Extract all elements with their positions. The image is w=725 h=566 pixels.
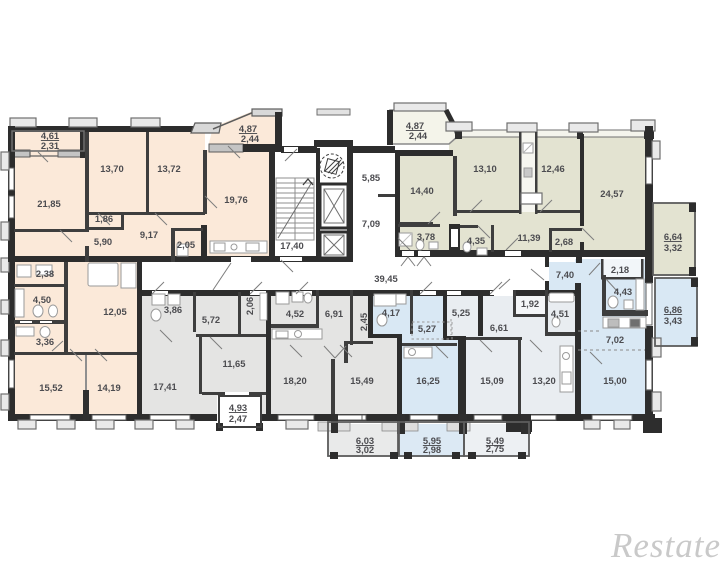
svg-text:3,36: 3,36: [36, 336, 54, 347]
svg-text:2,45: 2,45: [358, 313, 369, 331]
svg-text:5,25: 5,25: [452, 307, 470, 318]
svg-text:13,20: 13,20: [532, 375, 555, 386]
svg-text:4,51: 4,51: [551, 308, 569, 319]
svg-text:39,45: 39,45: [374, 273, 397, 284]
svg-text:2,31: 2,31: [41, 140, 59, 151]
svg-text:15,52: 15,52: [39, 382, 62, 393]
svg-text:4,50: 4,50: [33, 294, 51, 305]
svg-text:5,27: 5,27: [418, 323, 436, 334]
svg-text:13,10: 13,10: [473, 163, 496, 174]
svg-text:2,18: 2,18: [611, 264, 629, 275]
svg-text:6,61: 6,61: [490, 322, 508, 333]
svg-text:15,00: 15,00: [603, 375, 626, 386]
svg-text:9,17: 9,17: [140, 229, 158, 240]
svg-text:7,40: 7,40: [556, 269, 574, 280]
svg-text:4,17: 4,17: [382, 307, 400, 318]
svg-text:4,52: 4,52: [286, 308, 304, 319]
svg-text:11,39: 11,39: [518, 232, 541, 243]
svg-text:2,98: 2,98: [423, 444, 441, 455]
svg-text:18,20: 18,20: [283, 375, 306, 386]
svg-text:17,40: 17,40: [280, 240, 303, 251]
svg-text:2,05: 2,05: [177, 239, 195, 250]
svg-text:17,41: 17,41: [153, 381, 176, 392]
svg-text:4,93: 4,93: [229, 402, 247, 413]
svg-text:5,90: 5,90: [94, 236, 112, 247]
svg-text:2,06: 2,06: [244, 297, 255, 315]
svg-text:3,32: 3,32: [664, 242, 682, 253]
svg-text:6,64: 6,64: [664, 231, 683, 242]
svg-text:2,47: 2,47: [229, 413, 247, 424]
svg-text:16,25: 16,25: [416, 375, 439, 386]
svg-text:19,76: 19,76: [224, 194, 247, 205]
svg-text:7,09: 7,09: [362, 218, 380, 229]
svg-text:2,44: 2,44: [409, 130, 428, 141]
svg-text:6,91: 6,91: [325, 308, 343, 319]
svg-text:5,72: 5,72: [202, 314, 220, 325]
svg-text:24,57: 24,57: [600, 188, 623, 199]
svg-text:15,09: 15,09: [480, 375, 503, 386]
svg-text:15,49: 15,49: [350, 375, 373, 386]
svg-text:2,38: 2,38: [36, 268, 54, 279]
svg-text:3,86: 3,86: [164, 304, 182, 315]
svg-text:6,86: 6,86: [664, 304, 682, 315]
svg-text:11,65: 11,65: [223, 358, 246, 369]
svg-text:13,70: 13,70: [100, 163, 123, 174]
svg-text:12,46: 12,46: [541, 163, 564, 174]
svg-text:21,85: 21,85: [37, 198, 60, 209]
svg-text:14,40: 14,40: [410, 185, 433, 196]
svg-text:Restate: Restate: [610, 526, 721, 565]
svg-text:3,02: 3,02: [356, 444, 374, 455]
svg-text:2,68: 2,68: [555, 236, 573, 247]
svg-text:4,35: 4,35: [467, 235, 485, 246]
svg-text:7,02: 7,02: [606, 334, 624, 345]
svg-text:14,19: 14,19: [97, 382, 120, 393]
svg-text:5,85: 5,85: [362, 172, 380, 183]
svg-text:13,72: 13,72: [157, 163, 180, 174]
svg-text:1,92: 1,92: [521, 298, 539, 309]
svg-text:3,43: 3,43: [664, 315, 682, 326]
svg-text:2,75: 2,75: [486, 443, 504, 454]
svg-text:3,78: 3,78: [417, 231, 435, 242]
svg-text:2,44: 2,44: [241, 133, 260, 144]
svg-text:4,43: 4,43: [614, 286, 632, 297]
svg-text:1,86: 1,86: [95, 213, 113, 224]
svg-text:12,05: 12,05: [103, 306, 126, 317]
